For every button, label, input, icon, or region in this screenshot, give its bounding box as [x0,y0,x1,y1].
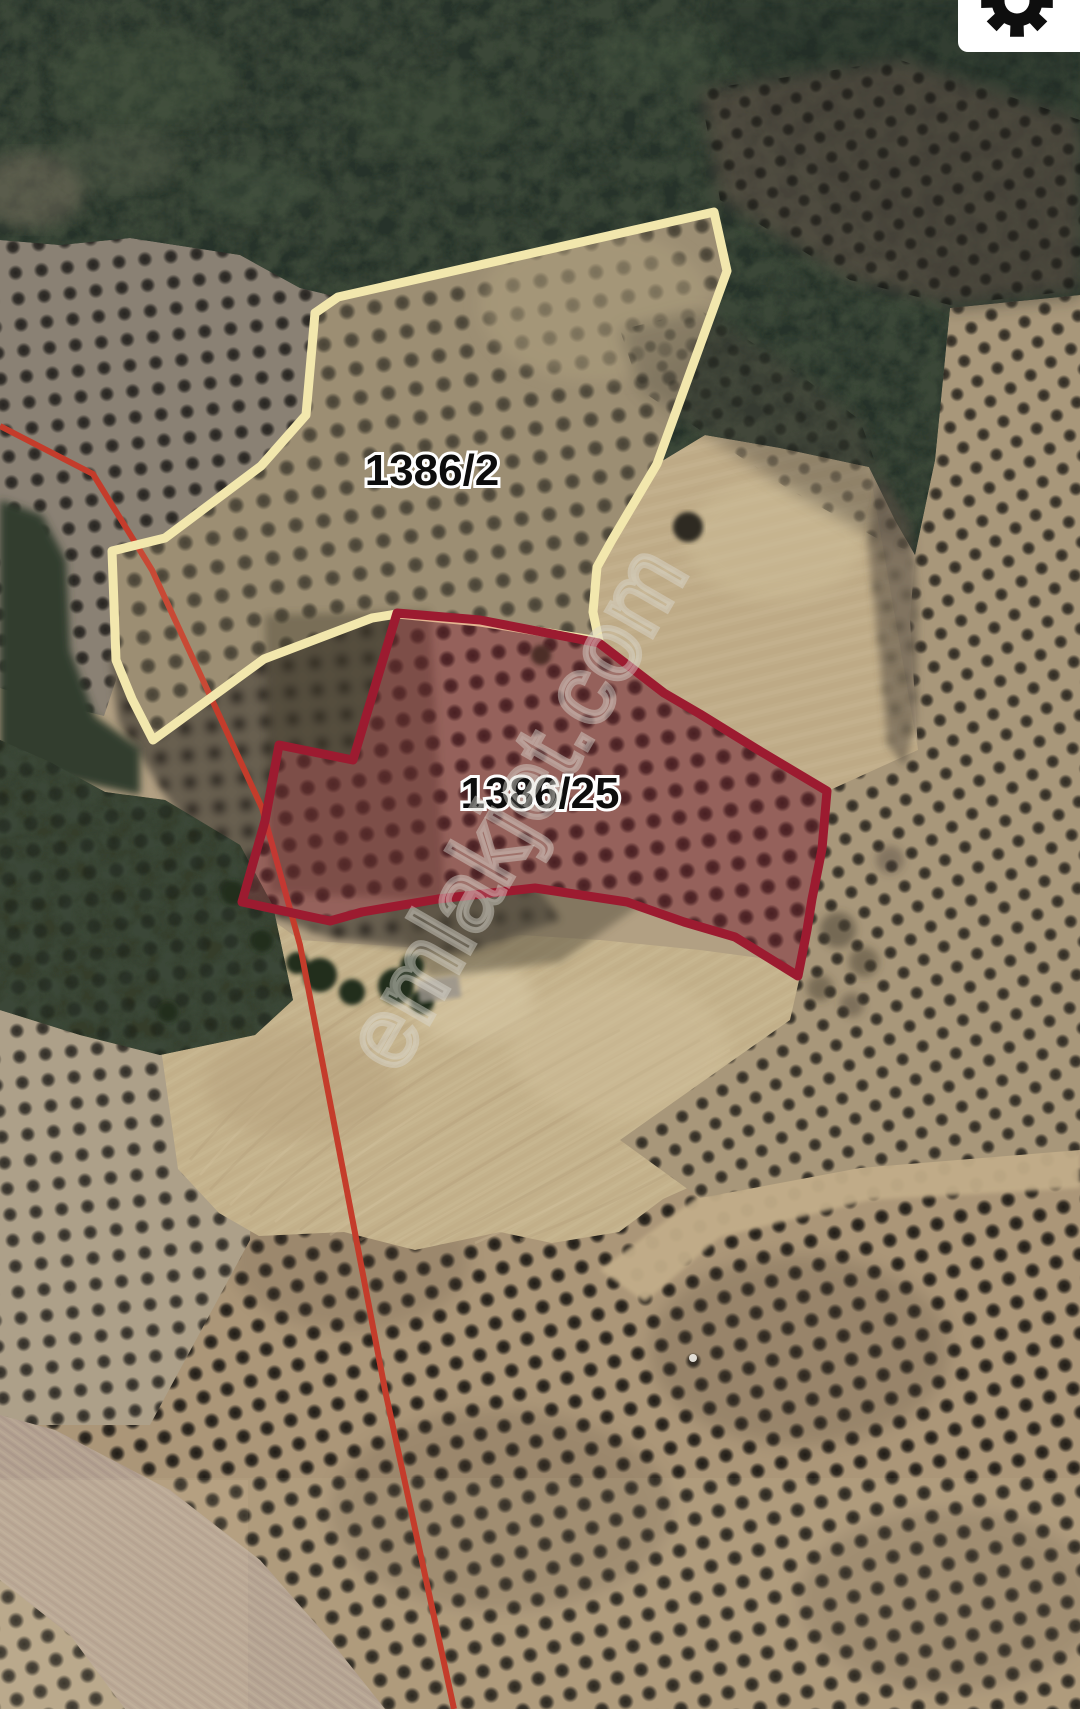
svg-text:1386/2: 1386/2 [365,446,500,495]
